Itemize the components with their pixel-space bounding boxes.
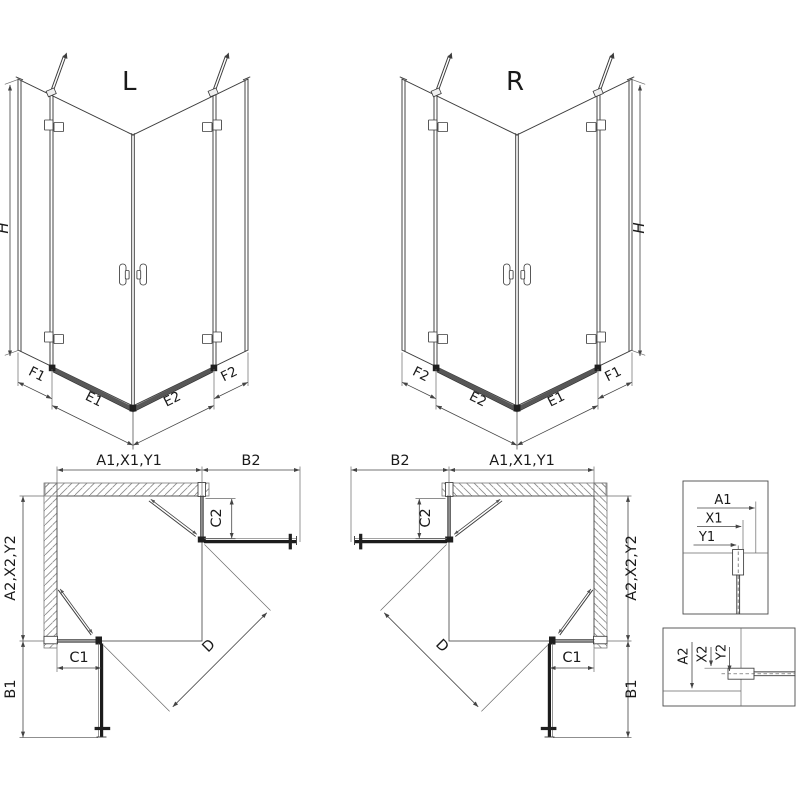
plan-left-width-label: A1,X1,Y1 — [96, 453, 162, 469]
wall-arm — [431, 53, 452, 97]
dim-label-h-right: H — [630, 222, 648, 233]
plan-left-b1-label: B1 — [3, 679, 19, 698]
dim-label-f2-left: F2 — [218, 364, 240, 386]
plan-right-d-label: D — [432, 637, 451, 656]
dim-label-f1-left: F1 — [26, 364, 48, 386]
plan-left-c1-label: C1 — [69, 650, 88, 666]
plan-right-b2-label: B2 — [390, 453, 409, 469]
detail-bottom-a2-label: A2 — [677, 647, 692, 664]
plan-view-left: A1,X1,Y1 B2 A2,X2,Y2 B1 C2 C1 D — [3, 453, 300, 738]
iso-right-title: R — [506, 67, 524, 97]
plan-right-depth-label: A2,X2,Y2 — [624, 535, 640, 601]
shower-enclosure-technical-drawing: L H F1 E1 E2 F2 R H F2 E2 E1 F1 A1,X1,Y1… — [0, 0, 800, 800]
plan-left-c2-label: C2 — [209, 508, 225, 527]
detail-wall-profile-side: A2 X2 Y2 — [663, 628, 795, 706]
plan-right-width-label: A1,X1,Y1 — [489, 453, 555, 469]
detail-top-a1-label: A1 — [714, 493, 731, 508]
detail-bottom-y2-label: Y2 — [715, 644, 730, 661]
dim-label-f2-right: F2 — [410, 364, 432, 386]
plan-right-c2-label: C2 — [418, 508, 434, 527]
drawing-canvas: L H F1 E1 E2 F2 R H F2 E2 E1 F1 A1,X1,Y1… — [0, 0, 800, 800]
wall-arm — [593, 53, 614, 97]
plan-left-d-label: D — [200, 637, 219, 656]
detail-top-x1-label: X1 — [705, 512, 722, 527]
plan-left-b2-label: B2 — [241, 453, 260, 469]
detail-bottom-x2-label: X2 — [696, 645, 711, 662]
plan-right-b1-label: B1 — [624, 679, 640, 698]
detail-wall-profile-top: A1 X1 Y1 — [683, 481, 768, 614]
detail-top-y1-label: Y1 — [698, 530, 715, 545]
dim-label-f1-right: F1 — [602, 364, 624, 386]
iso-view-left: L H F1 E1 E2 F2 — [0, 53, 250, 450]
dim-label-h-left: H — [0, 222, 12, 233]
plan-left-depth-label: A2,X2,Y2 — [3, 535, 19, 601]
iso-view-right: R H F2 E2 E1 F1 — [400, 53, 648, 450]
plan-view-right: B2 A1,X1,Y1 A2,X2,Y2 B1 C2 C1 D — [351, 453, 640, 738]
wall-arm — [208, 53, 229, 97]
iso-left-title: L — [122, 67, 137, 97]
wall-arm — [46, 53, 67, 97]
plan-right-c1-label: C1 — [562, 650, 581, 666]
